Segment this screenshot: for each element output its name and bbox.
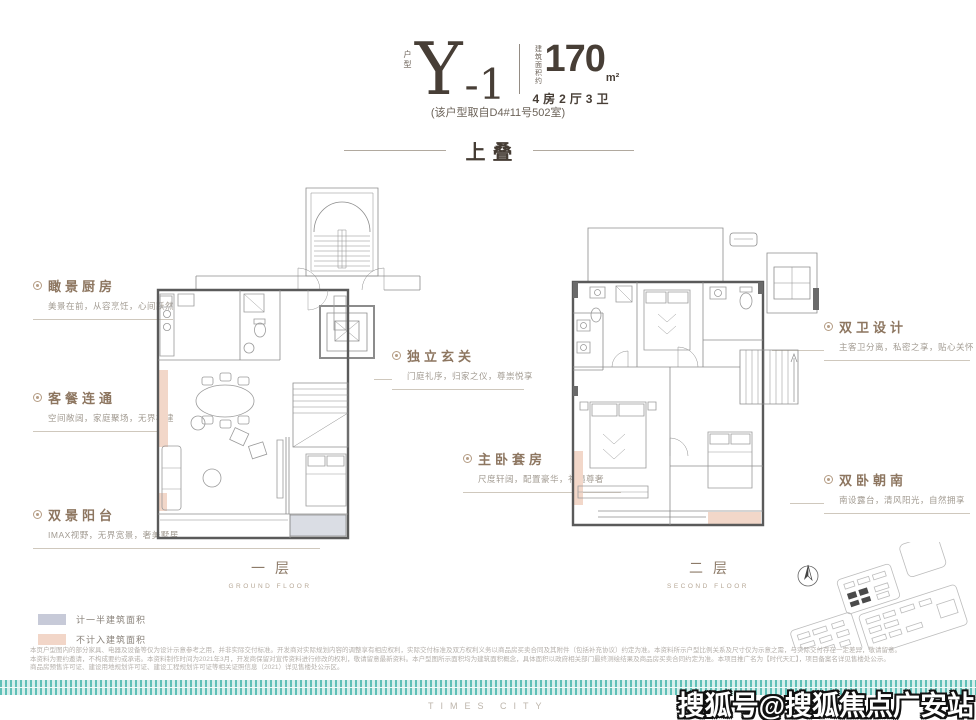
floorplan-poster: 户型 Y -1 建筑面积约 170 m² 4房2厅3卫 (该户型取自D4#11号… xyxy=(0,0,976,720)
ring-bullet-icon xyxy=(33,393,42,402)
floor-label-second: 二层 SECOND FLOOR xyxy=(633,558,783,590)
legal-disclaimer: 本页户型图内的部分家具、电器及设备等仅为设计示意参考之用，并非实际交付标准。开发… xyxy=(30,647,946,673)
ring-bullet-icon xyxy=(463,454,472,463)
floor-name: 二层 xyxy=(633,558,783,578)
watermark: 搜狐号@搜狐焦点广安站 xyxy=(678,684,974,720)
masterplan-blocks xyxy=(782,542,968,650)
annotation-rule xyxy=(33,431,165,432)
roof-equipment xyxy=(767,253,819,313)
annotation-title: 主卧套房 xyxy=(478,449,546,468)
site-key-plan xyxy=(782,542,976,650)
area-block: 建筑面积约 170 m² 4房2厅3卫 xyxy=(532,42,619,107)
annotation-title: 客餐连通 xyxy=(48,388,116,407)
balcony-excluded-area xyxy=(158,370,168,447)
floor-name-en: SECOND FLOOR xyxy=(633,583,783,590)
corridor xyxy=(196,268,420,290)
unit-outer-wall xyxy=(573,282,763,525)
bedroom-2 xyxy=(644,290,690,350)
unit-type-letter: Y xyxy=(415,38,463,100)
ring-bullet-icon xyxy=(33,510,42,519)
annotation-living: 客餐连通 空间敞阔，家庭聚场，无界构建 xyxy=(33,388,165,432)
annotation-subtitle: 主客卫分离，私密之享，贴心关怀 xyxy=(839,341,970,353)
floor-label-ground: 一层 GROUND FLOOR xyxy=(195,558,345,590)
floor-name: 一层 xyxy=(195,558,345,578)
living-room xyxy=(162,428,283,510)
annotation-title: 双卧朝南 xyxy=(839,470,907,489)
area-value: 170 xyxy=(544,42,604,76)
legend-label: 计一半建筑面积 xyxy=(76,613,146,626)
unit-title-block: 户型 Y -1 建筑面积约 170 m² 4房2厅3卫 xyxy=(402,38,619,107)
legend-label: 不计入建筑面积 xyxy=(76,633,146,646)
half-area-room xyxy=(290,515,346,536)
heading-line-left xyxy=(344,150,446,151)
annotation-title: 双景阳台 xyxy=(48,505,116,524)
external-staircase xyxy=(306,188,378,276)
legend-swatch-excluded-area xyxy=(38,634,66,645)
bathroom xyxy=(244,294,266,353)
disclaimer-line: 本页户型图内的部分家具、电器及设备等仅为设计示意参考之用，并非实际交付标准。开发… xyxy=(30,647,946,656)
brand-logotype: TIMES CITY xyxy=(428,701,549,711)
terrace-excluded-area xyxy=(574,451,583,505)
unit-type-suffix: -1 xyxy=(465,65,506,105)
source-note: (该户型取自D4#11号502室) xyxy=(398,104,598,120)
bedroom-3 xyxy=(708,432,752,488)
bathroom-1 xyxy=(590,286,632,322)
section-title: 上叠 xyxy=(459,136,520,165)
title-divider xyxy=(519,44,520,94)
kitchen xyxy=(160,294,194,356)
partitions xyxy=(573,282,763,525)
roof-terrace xyxy=(588,228,757,282)
area-unit: m² xyxy=(606,72,619,84)
area-label: 建筑面积约 xyxy=(532,45,542,85)
disclaimer-line: 本资料为要约邀请，不构成要约或承诺。本资料制作时间为2021年3月，开发商保留对… xyxy=(30,656,946,665)
annotation-subtitle: 南设露台，清风阳光，自然拥享 xyxy=(839,494,970,506)
annotation-title: 双卫设计 xyxy=(839,317,907,336)
disclaimer-line: 商品房预售许可证、建设用地规划许可证、建设工程规划许可证等相关证照信息（2021… xyxy=(30,664,946,673)
legend-row: 不计入建筑面积 xyxy=(38,633,146,646)
heading-line-right xyxy=(533,150,635,151)
master-bedroom xyxy=(578,402,656,498)
dining-area xyxy=(191,373,254,430)
terrace-excluded-area xyxy=(708,512,761,524)
legend-swatch-half-area xyxy=(38,614,66,625)
ring-bullet-icon xyxy=(33,281,42,290)
bedroom xyxy=(306,454,346,506)
washroom xyxy=(577,320,590,353)
compass-icon xyxy=(798,565,818,586)
bathroom-2 xyxy=(710,287,752,309)
area-legend: 计一半建筑面积 不计入建筑面积 xyxy=(38,613,146,646)
second-floor-plan xyxy=(558,216,848,556)
staircase xyxy=(740,350,798,404)
ground-floor-plan xyxy=(148,178,432,550)
legend-row: 计一半建筑面积 xyxy=(38,613,146,626)
floor-name-en: GROUND FLOOR xyxy=(195,583,345,590)
type-label: 户型 xyxy=(402,50,413,70)
section-heading: 上叠 xyxy=(344,136,634,165)
annotation-title: 瞰景厨房 xyxy=(48,276,116,295)
